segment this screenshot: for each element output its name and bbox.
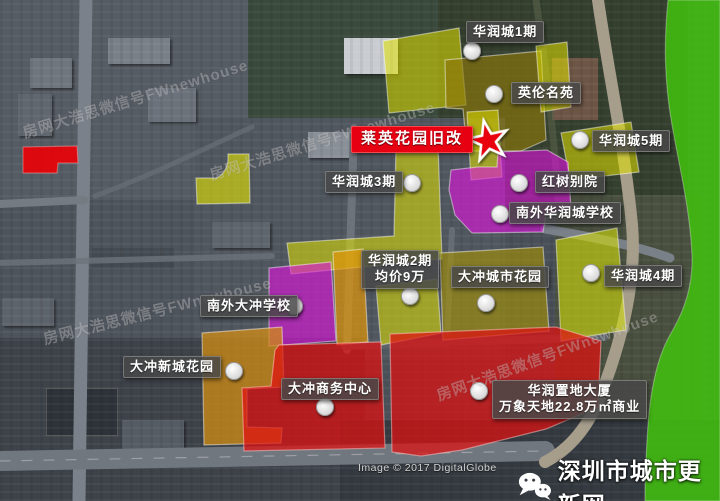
label-hongshu-bieyuan: 红树别院	[535, 171, 605, 193]
label-dachong-city-garden: 大冲城市花园	[451, 266, 549, 288]
label-line-price: 均价9万	[368, 269, 432, 285]
label-huarun-city-4: 华润城4期	[604, 265, 682, 287]
label-huarun-city-1: 华润城1期	[466, 21, 544, 43]
label-laiying-garden-redevelopment: 莱英花园旧改	[351, 126, 473, 153]
zone-elbow-yellow	[196, 154, 250, 204]
marker-dot-yinglun-mingyuan	[486, 86, 503, 103]
label-line-main: 华润城2期	[368, 253, 432, 269]
label-line-commercial: 万象天地22.8万㎡商业	[499, 399, 640, 415]
marker-dot-huarun-city-3	[404, 175, 421, 192]
site-name: 深圳市城市更新网	[558, 452, 720, 501]
label-huarun-zhidi-tower: 华润置地大厦 万象天地22.8万㎡商业	[492, 380, 647, 419]
map-overlay-layer	[0, 0, 720, 501]
label-dachong-xincheng-garden: 大冲新城花园	[123, 356, 221, 378]
marker-dot-huarun-zhidi-tower	[471, 383, 488, 400]
site-branding: 深圳市城市更新网	[518, 452, 720, 501]
label-line-main: 华润置地大厦	[499, 383, 640, 399]
wechat-icon	[518, 469, 552, 501]
marker-dot-huarun-city-5	[572, 132, 589, 149]
label-dachong-business-center: 大冲商务中心	[281, 378, 379, 400]
marker-dot-dachong-xincheng-garden	[226, 363, 243, 380]
imagery-credit: Image © 2017 DigitalGlobe	[358, 462, 497, 474]
label-huarun-city-3: 华润城3期	[325, 171, 403, 193]
marker-dot-huarun-city-1	[464, 43, 481, 60]
marker-dot-huarun-city-2	[402, 288, 419, 305]
map-canvas: 房网大浩思微信号FWnewhouse 房网大浩思微信号FWnewhouse 房网…	[0, 0, 720, 501]
marker-dot-dachong-business-center	[317, 399, 334, 416]
zone-dachong-city-garden	[440, 247, 549, 340]
label-nanwai-huaruncheng-school: 南外华润城学校	[509, 202, 621, 224]
marker-dot-nanwai-huaruncheng-school	[492, 206, 509, 223]
marker-dot-dachong-city-garden	[478, 295, 495, 312]
label-huarun-city-2: 华润城2期 均价9万	[361, 250, 439, 289]
label-huarun-city-5: 华润城5期	[592, 130, 670, 152]
label-nanwai-dachong-school: 南外大冲学校	[200, 295, 298, 317]
zone-unlabeled-red-west	[23, 146, 78, 173]
marker-dot-hongshu-bieyuan	[511, 175, 528, 192]
label-yinglun-mingyuan: 英伦名苑	[511, 82, 581, 104]
marker-dot-huarun-city-4	[583, 265, 600, 282]
